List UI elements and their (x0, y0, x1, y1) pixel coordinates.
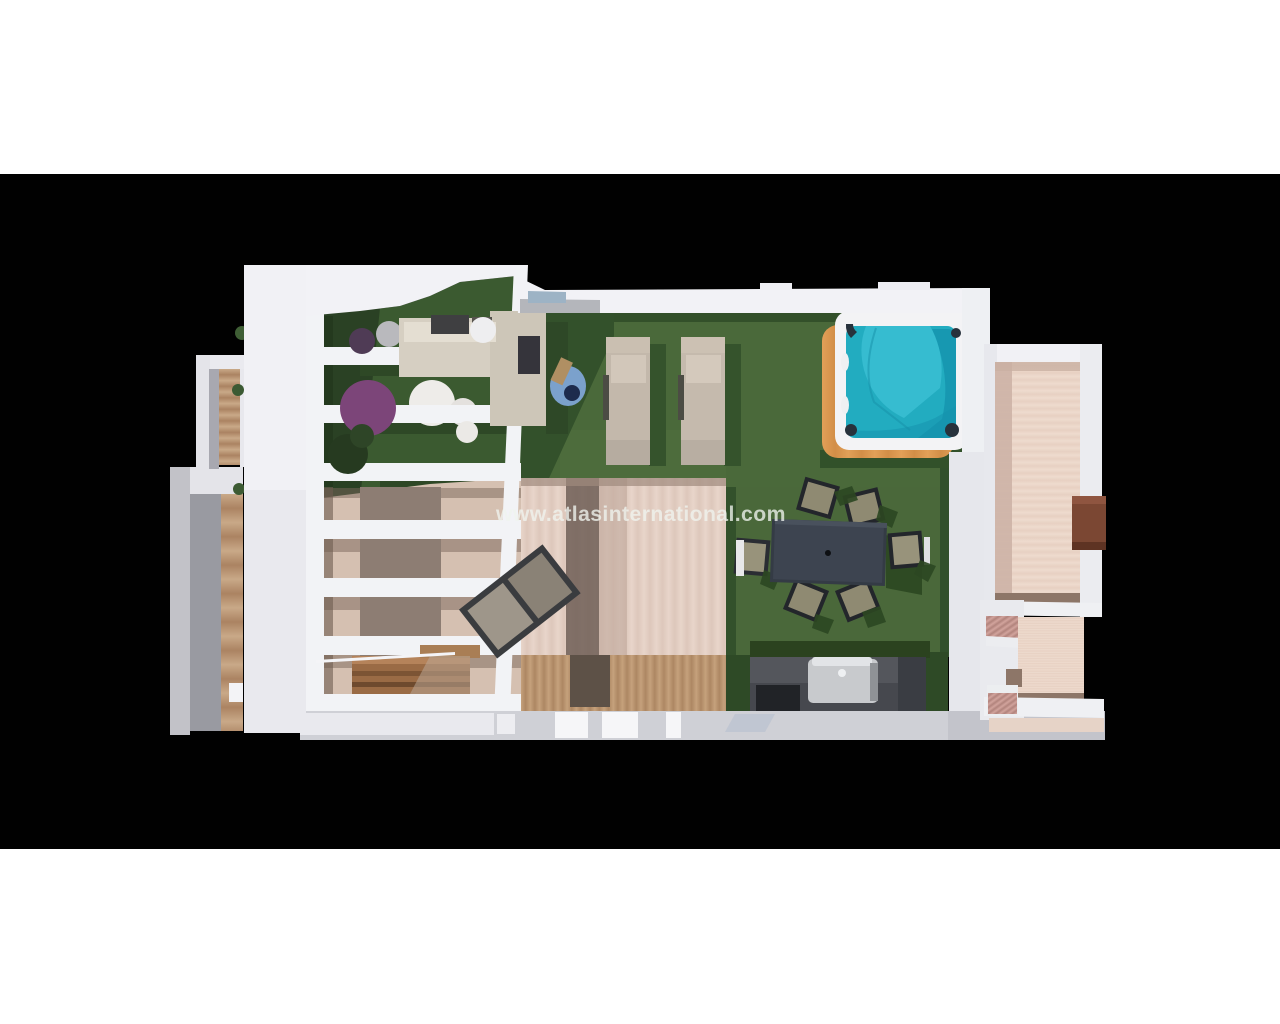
svg-text:www.atlasinternational.com: www.atlasinternational.com (495, 503, 786, 526)
